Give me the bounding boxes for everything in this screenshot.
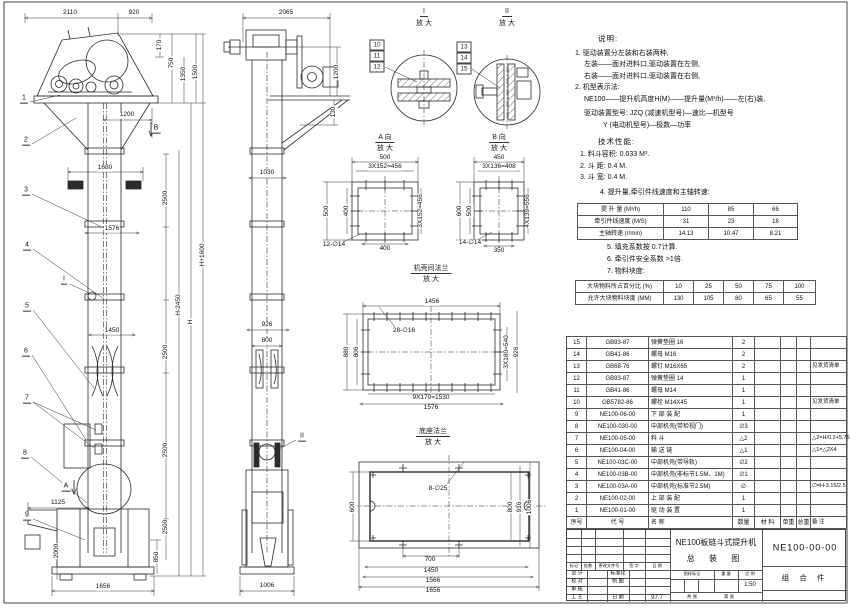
table-cell: 螺栓 M14X45 <box>649 397 733 409</box>
table-cell <box>755 433 781 445</box>
dim-label: 2500 <box>163 519 170 535</box>
table-cell: GB93-87 <box>587 337 649 349</box>
table-cell <box>797 505 811 517</box>
dim-label: 850 <box>154 551 161 564</box>
dim-label: 1125 <box>50 500 66 507</box>
table-cell <box>781 421 797 433</box>
table-cell: GB5782-86 <box>587 397 649 409</box>
note-line: 左装——面对进料口,驱动装置在左侧, <box>584 61 700 69</box>
table-cell: 2 <box>567 493 587 505</box>
table-cell: 名 称 <box>649 517 733 529</box>
dim-label: 1656 <box>95 584 111 591</box>
balloon-10: 10 <box>370 40 385 51</box>
dim-label: 1200 <box>334 64 341 80</box>
role-draft: 制 图 <box>612 580 623 585</box>
table-cell: 5 <box>567 457 587 469</box>
table-cell <box>797 385 811 397</box>
view-b-title: B 向 <box>489 134 509 143</box>
table-cell: 序号 <box>567 517 587 529</box>
table-cell: 4 <box>567 469 587 481</box>
table-cell: 15 <box>567 337 587 349</box>
table-cell: 2 <box>733 361 755 373</box>
spec-heading: 技术性能: <box>598 138 635 146</box>
table-cell: 总重 <box>797 517 811 529</box>
dim-label: 1576 <box>104 226 120 233</box>
dim-label: 1680 <box>97 165 113 172</box>
table-cell <box>811 493 847 505</box>
table-cell <box>797 457 811 469</box>
table-cell <box>797 397 811 409</box>
spec-line: 1. 料斗容积: 0.033 M³. <box>580 151 649 159</box>
table-cell <box>781 445 797 457</box>
dim-label: 2110 <box>62 10 78 17</box>
casing-flange-geometry <box>356 306 508 398</box>
drawing-title-line2: 总 装 图 <box>687 555 745 563</box>
table-cell: 10 <box>567 397 587 409</box>
detail-ii-title: II <box>502 8 512 17</box>
table-cell: 1 <box>733 385 755 397</box>
dim-label: 2065 <box>278 10 294 17</box>
role-audit: 审 核 <box>571 588 582 593</box>
table-cell: 7 <box>567 433 587 445</box>
table-cell: 100 <box>784 281 816 293</box>
table-cell: 10.47 <box>709 228 754 240</box>
table-cell: ∅ <box>733 481 755 493</box>
dim-label: 700 <box>424 557 437 564</box>
role-check: 校 对 <box>571 580 582 585</box>
dim-label: 920 <box>128 10 141 17</box>
table-cell <box>797 409 811 421</box>
table-cell <box>755 385 781 397</box>
table-cell: 牵引件线速度 (M/S) <box>578 216 664 228</box>
table-cell <box>811 505 847 517</box>
table-cell <box>755 397 781 409</box>
table-cell: 材 料 <box>755 517 781 529</box>
table-cell <box>811 421 847 433</box>
dim-label: 500 <box>379 155 392 162</box>
view-marker-b: B <box>152 125 161 134</box>
dim-label: 1500 <box>193 64 200 80</box>
table-cell <box>781 337 797 349</box>
table-cell: GB41-86 <box>587 349 649 361</box>
dim-label: 170 <box>157 39 164 52</box>
table-cell: 18 <box>754 216 798 228</box>
view-a-mag-label: 放 大 <box>377 145 393 153</box>
table-cell <box>797 469 811 481</box>
dim-label: 1456 <box>424 299 440 306</box>
rev-col-mark: 标记 <box>570 564 578 568</box>
base-flange-title: 底座法兰 <box>416 428 450 437</box>
drawing-sheet: 2110 920 170 750 1350 1500 1200 1680 157… <box>0 0 850 609</box>
dim-label: 800 <box>508 501 515 514</box>
front-view <box>25 27 158 580</box>
dim-label: 880 <box>344 346 351 359</box>
table-cell: △2=H/0.2+5.75 <box>811 433 847 445</box>
dim-label: 600 <box>457 205 464 218</box>
spec-line: 5. 填充系数按 0.7计算. <box>607 244 677 252</box>
role-standard: 标准化 <box>610 572 625 577</box>
table-cell: 85 <box>709 204 754 216</box>
table-cell: 14.13 <box>664 228 709 240</box>
table-cell: NE100-05-00 <box>587 433 649 445</box>
sheets-label: 共 张 <box>687 595 697 600</box>
table-cell <box>755 457 781 469</box>
view-b-geometry <box>466 176 532 248</box>
detail-marker-ii: II <box>298 433 306 442</box>
table-cell: ∅1 <box>733 469 755 481</box>
page-label: 第 张 <box>724 595 734 600</box>
note-line: 驱动装置型号: JZQ (减速机型号)—速比—机型号 <box>584 110 734 118</box>
table-cell <box>755 409 781 421</box>
table-cell: 130 <box>664 293 694 305</box>
balloon-1: 1 <box>20 95 28 104</box>
table-cell <box>755 445 781 457</box>
table-cell <box>755 505 781 517</box>
dim-label: 400 <box>344 205 351 218</box>
date-value: 97.7 <box>651 595 663 601</box>
dim-label: 3X152=456 <box>418 193 425 228</box>
view-b-dimension-lines <box>456 157 528 246</box>
table-cell <box>755 337 781 349</box>
dim-label: 1450 <box>104 328 120 335</box>
balloon-8: 8 <box>21 450 29 459</box>
table-cell: 1 <box>733 397 755 409</box>
table-cell: ∅2 <box>733 457 755 469</box>
table-cell: 14 <box>567 349 587 361</box>
balloon-2: 2 <box>22 137 30 146</box>
table-cell <box>797 433 811 445</box>
table-cell: 13 <box>567 361 587 373</box>
table-cell: 1 <box>567 505 587 517</box>
table-cell <box>781 493 797 505</box>
table-cell: 11 <box>567 385 587 397</box>
table-cell <box>797 373 811 385</box>
table-cell <box>811 373 847 385</box>
table-cell <box>811 337 847 349</box>
table-cell: 10 <box>664 281 694 293</box>
dim-label: 1200 <box>119 112 135 119</box>
table-cell: 105 <box>694 293 724 305</box>
table-cell <box>797 445 811 457</box>
table-cell: 螺母 M14 <box>649 385 733 397</box>
dim-label: 2500 <box>163 344 170 360</box>
hole-callout: 8-∅25 <box>428 486 449 493</box>
table-cell: 12 <box>567 373 587 385</box>
table-cell: 弹簧垫圈 16 <box>649 337 733 349</box>
balloon-9: 9 <box>23 512 31 521</box>
table-cell: 代 号 <box>587 517 649 529</box>
table-cell <box>755 373 781 385</box>
rev-col-sign: 签 字 <box>629 564 639 568</box>
dim-label: 1450 <box>423 568 439 575</box>
side-dimension-lines <box>240 13 341 596</box>
table-cell: 50 <box>724 281 754 293</box>
balloon-7: 7 <box>23 395 31 404</box>
view-marker-a: A <box>62 483 71 492</box>
balloon-4: 4 <box>23 242 31 251</box>
table-cell: 1 <box>733 409 755 421</box>
dim-label: H-2450 <box>176 293 183 316</box>
table-cell: 2 <box>733 349 755 361</box>
table-cell: 主轴转速 (r/min) <box>578 228 664 240</box>
dim-label: 130 <box>331 106 338 119</box>
dim-label: 926 <box>261 322 274 329</box>
table-cell: 提 升 量 (M³/h) <box>578 204 664 216</box>
balloon-13: 13 <box>457 42 472 53</box>
table-cell: 66 <box>754 204 798 216</box>
table-cell <box>811 469 847 481</box>
table-cell <box>797 421 811 433</box>
dim-label: 600 <box>350 501 357 514</box>
table-cell: 数量 <box>733 517 755 529</box>
table-cell: 中部机壳(带检视门) <box>649 421 733 433</box>
dim-label: 2500 <box>163 190 170 206</box>
table-cell: 80 <box>724 293 754 305</box>
table-cell <box>797 361 811 373</box>
table-cell <box>755 469 781 481</box>
table-cell: 31 <box>664 216 709 228</box>
dim-label: 2000 <box>54 543 61 559</box>
dim-label: 4X139=556 <box>525 193 532 228</box>
table-cell: NE100-03A-00 <box>587 481 649 493</box>
table-cell: 大块物料所占百分比 (%) <box>576 281 664 293</box>
table-cell: 中部机壳(带导轨) <box>649 457 733 469</box>
dim-label: 1576 <box>423 405 439 412</box>
dim-label: 750 <box>169 57 176 70</box>
dim-label: 926 <box>514 346 521 359</box>
detail-i-title: I <box>420 8 428 17</box>
role-design: 设 计 <box>571 572 582 577</box>
hole-callout: 28-∅16 <box>392 328 416 335</box>
table-cell: 见发货清单 <box>811 397 847 409</box>
role-process: 工 艺 <box>571 596 582 601</box>
dim-label: 2500 <box>163 442 170 458</box>
dim-label: H <box>188 319 195 326</box>
table-cell <box>811 349 847 361</box>
spec-line: 2. 斗 距: 0.4 M. <box>580 163 627 171</box>
table-cell: 弹簧垫圈 14 <box>649 373 733 385</box>
rev-col-count: 处数 <box>584 564 592 568</box>
title-block: 标记 处数 更改文件号 签 字 日 期 设 计 标准化 校 对 制 图 审 核 … <box>566 529 846 601</box>
table-cell <box>781 457 797 469</box>
dim-label: 3X152=456 <box>367 164 402 171</box>
dim-label: 1350 <box>181 66 188 82</box>
table-cell <box>781 385 797 397</box>
table-cell: 1 <box>733 505 755 517</box>
role-date: 日 期 <box>612 596 623 601</box>
dim-label: 1006 <box>527 499 534 515</box>
notes-heading: 说明: <box>598 35 618 43</box>
table-cell <box>811 457 847 469</box>
dim-label: 1030 <box>259 170 275 177</box>
note-line: NE100——提升机高度H(M)——提升量(M³/h)——左(右)装, <box>584 96 765 104</box>
table-cell: NE100-06-00 <box>587 409 649 421</box>
view-a-title: A 向 <box>375 134 394 143</box>
table-cell: NE100-04-00 <box>587 445 649 457</box>
note-line: 右装——面对进料口,驱动装置在右侧, <box>584 73 700 81</box>
table-cell <box>781 469 797 481</box>
table-cell <box>781 373 797 385</box>
table-cell <box>811 385 847 397</box>
note-line: 2. 机型表示法: <box>575 84 620 92</box>
table-cell: ∅3 <box>733 421 755 433</box>
base-flange-mag-label: 放 大 <box>425 439 441 447</box>
table-cell: 23 <box>709 216 754 228</box>
table-cell: 8 <box>567 421 587 433</box>
detail-ii-mag-label: 放 大 <box>499 20 515 28</box>
lump-size-table: 大块物料所占百分比 (%)10255075100允许大块物料块度 (MM)130… <box>575 280 816 305</box>
table-cell <box>781 433 797 445</box>
drawing-title-line1: NE100板链斗式提升机 <box>676 539 756 547</box>
base-flange-dimension-lines <box>349 462 539 591</box>
table-cell: 上 部 装 配 <box>649 493 733 505</box>
table-cell <box>811 409 847 421</box>
table-cell <box>797 481 811 493</box>
table-cell: 备 注 <box>811 517 847 529</box>
dim-label: H+1600 <box>200 243 207 268</box>
table-cell: 允许大块物料块度 (MM) <box>576 293 664 305</box>
view-b-mag-label: 放 大 <box>491 145 507 153</box>
table-cell <box>781 505 797 517</box>
table-cell <box>755 361 781 373</box>
dim-label: 3X180=540 <box>504 334 511 369</box>
dim-label: 800 <box>261 338 274 345</box>
table-cell: 3 <box>567 481 587 493</box>
table-cell: NE100-030-00 <box>587 421 649 433</box>
dim-label: 1566 <box>425 578 441 585</box>
table-cell: 见发货清单 <box>811 361 847 373</box>
table-cell: 2 <box>733 337 755 349</box>
stamp-mark-label: 图样标记 <box>684 572 701 576</box>
table-cell: 6 <box>567 445 587 457</box>
detail-i-view <box>385 50 457 126</box>
dim-label: 9X170=1530 <box>411 395 450 402</box>
dim-label: 3X136=408 <box>481 164 516 171</box>
table-cell: GB93-87 <box>587 373 649 385</box>
table-cell: 单重 <box>781 517 797 529</box>
stamp-scale-label: 比 例 <box>745 572 755 576</box>
balloon-12: 12 <box>370 62 385 73</box>
table-cell: 下 部 装 配 <box>649 409 733 421</box>
drawing-number: NE100-00-00 <box>773 544 838 553</box>
spec-line: 7. 物料块度: <box>607 268 645 276</box>
table-cell: 110 <box>664 204 709 216</box>
scale-value: 1:50 <box>744 582 756 588</box>
table-cell <box>781 361 797 373</box>
detail-i-mag-label: 放 大 <box>416 20 432 28</box>
table-cell: GB68-76 <box>587 361 649 373</box>
performance-table: 提 升 量 (M³/h)1108566牵引件线速度 (M/S)312318主轴转… <box>577 203 798 240</box>
table-cell: 螺母 M16 <box>649 349 733 361</box>
detail-ii-view <box>472 55 540 129</box>
table-cell: GB41-86 <box>587 385 649 397</box>
spec-line: 4. 提升量,牵引件线速度和主轴转速: <box>600 189 710 197</box>
table-cell: 65 <box>754 293 784 305</box>
table-cell <box>755 421 781 433</box>
balloon-6: 6 <box>22 348 30 357</box>
rev-col-date: 日 期 <box>652 564 662 568</box>
dim-label: 500 <box>467 205 474 218</box>
table-cell: 25 <box>694 281 724 293</box>
table-cell: 1 <box>733 493 755 505</box>
table-cell <box>781 409 797 421</box>
spec-line: 3. 斗 宽: 0.4 M. <box>580 174 627 182</box>
note-line: Y (电动机型号)—极数—功率 <box>603 122 691 130</box>
table-cell: NE100-02-00 <box>587 493 649 505</box>
table-cell: 输 送 链 <box>649 445 733 457</box>
table-cell <box>755 493 781 505</box>
hole-callout: 14-∅14 <box>458 240 482 247</box>
table-cell: 驱 动 装 置 <box>649 505 733 517</box>
dim-label: 400 <box>379 246 392 253</box>
view-a-geometry <box>346 176 424 248</box>
casing-flange-mag-label: 放 大 <box>423 276 439 284</box>
table-cell: 中部机壳(标准节2.5M) <box>649 481 733 493</box>
table-cell: 75 <box>754 281 784 293</box>
bom-table: 15GB93-87弹簧垫圈 16214GB41-86螺母 M16213GB68-… <box>566 336 847 529</box>
table-cell: 螺钉 M16X65 <box>649 361 733 373</box>
table-cell <box>781 349 797 361</box>
detail-marker-i: I <box>61 276 67 285</box>
balloon-3: 3 <box>22 187 30 196</box>
balloon-14: 14 <box>457 53 472 64</box>
table-cell: NE100-01-00 <box>587 505 649 517</box>
table-cell: 9 <box>567 409 587 421</box>
note-line: 1. 驱动装置分左装和右装两种, <box>575 50 669 58</box>
dim-label: 450 <box>493 155 506 162</box>
table-cell: △1 <box>733 445 755 457</box>
balloon-5: 5 <box>23 303 31 312</box>
table-cell <box>797 349 811 361</box>
table-cell <box>755 481 781 493</box>
dim-label: 500 <box>324 205 331 218</box>
balloon-15: 15 <box>457 64 472 75</box>
casing-flange-title: 机壳间法兰 <box>411 265 452 274</box>
table-cell: 8.21 <box>754 228 798 240</box>
balloon-11: 11 <box>370 51 385 62</box>
table-cell <box>797 337 811 349</box>
table-cell <box>755 349 781 361</box>
table-cell: 料 斗 <box>649 433 733 445</box>
dim-label: 1006 <box>259 583 275 590</box>
table-cell: ∅=H-3.15/2.5 <box>811 481 847 493</box>
dim-label: 806 <box>354 346 361 359</box>
dim-label: 1656 <box>425 588 441 595</box>
hole-callout: 12-∅14 <box>322 242 346 249</box>
table-cell: 1 <box>733 373 755 385</box>
dim-label: 916 <box>517 501 524 514</box>
table-cell: 中部机壳(非标节1.5M、1M) <box>649 469 733 481</box>
dim-label: 350 <box>493 248 506 255</box>
stamp-weight-label: 重 量 <box>721 572 731 576</box>
table-cell: 55 <box>784 293 816 305</box>
spec-line: 6. 牵引件安全系数 >1倍. <box>607 256 683 264</box>
table-cell: △1=△2X4 <box>811 445 847 457</box>
table-cell: NE100-03B-00 <box>587 469 649 481</box>
table-cell: NE100-03C-00 <box>587 457 649 469</box>
table-cell <box>781 397 797 409</box>
table-cell <box>781 481 797 493</box>
rev-col-doc: 更改文件号 <box>599 564 620 568</box>
part-type: 组 合 件 <box>782 574 829 582</box>
table-cell <box>797 493 811 505</box>
table-cell: △2 <box>733 433 755 445</box>
